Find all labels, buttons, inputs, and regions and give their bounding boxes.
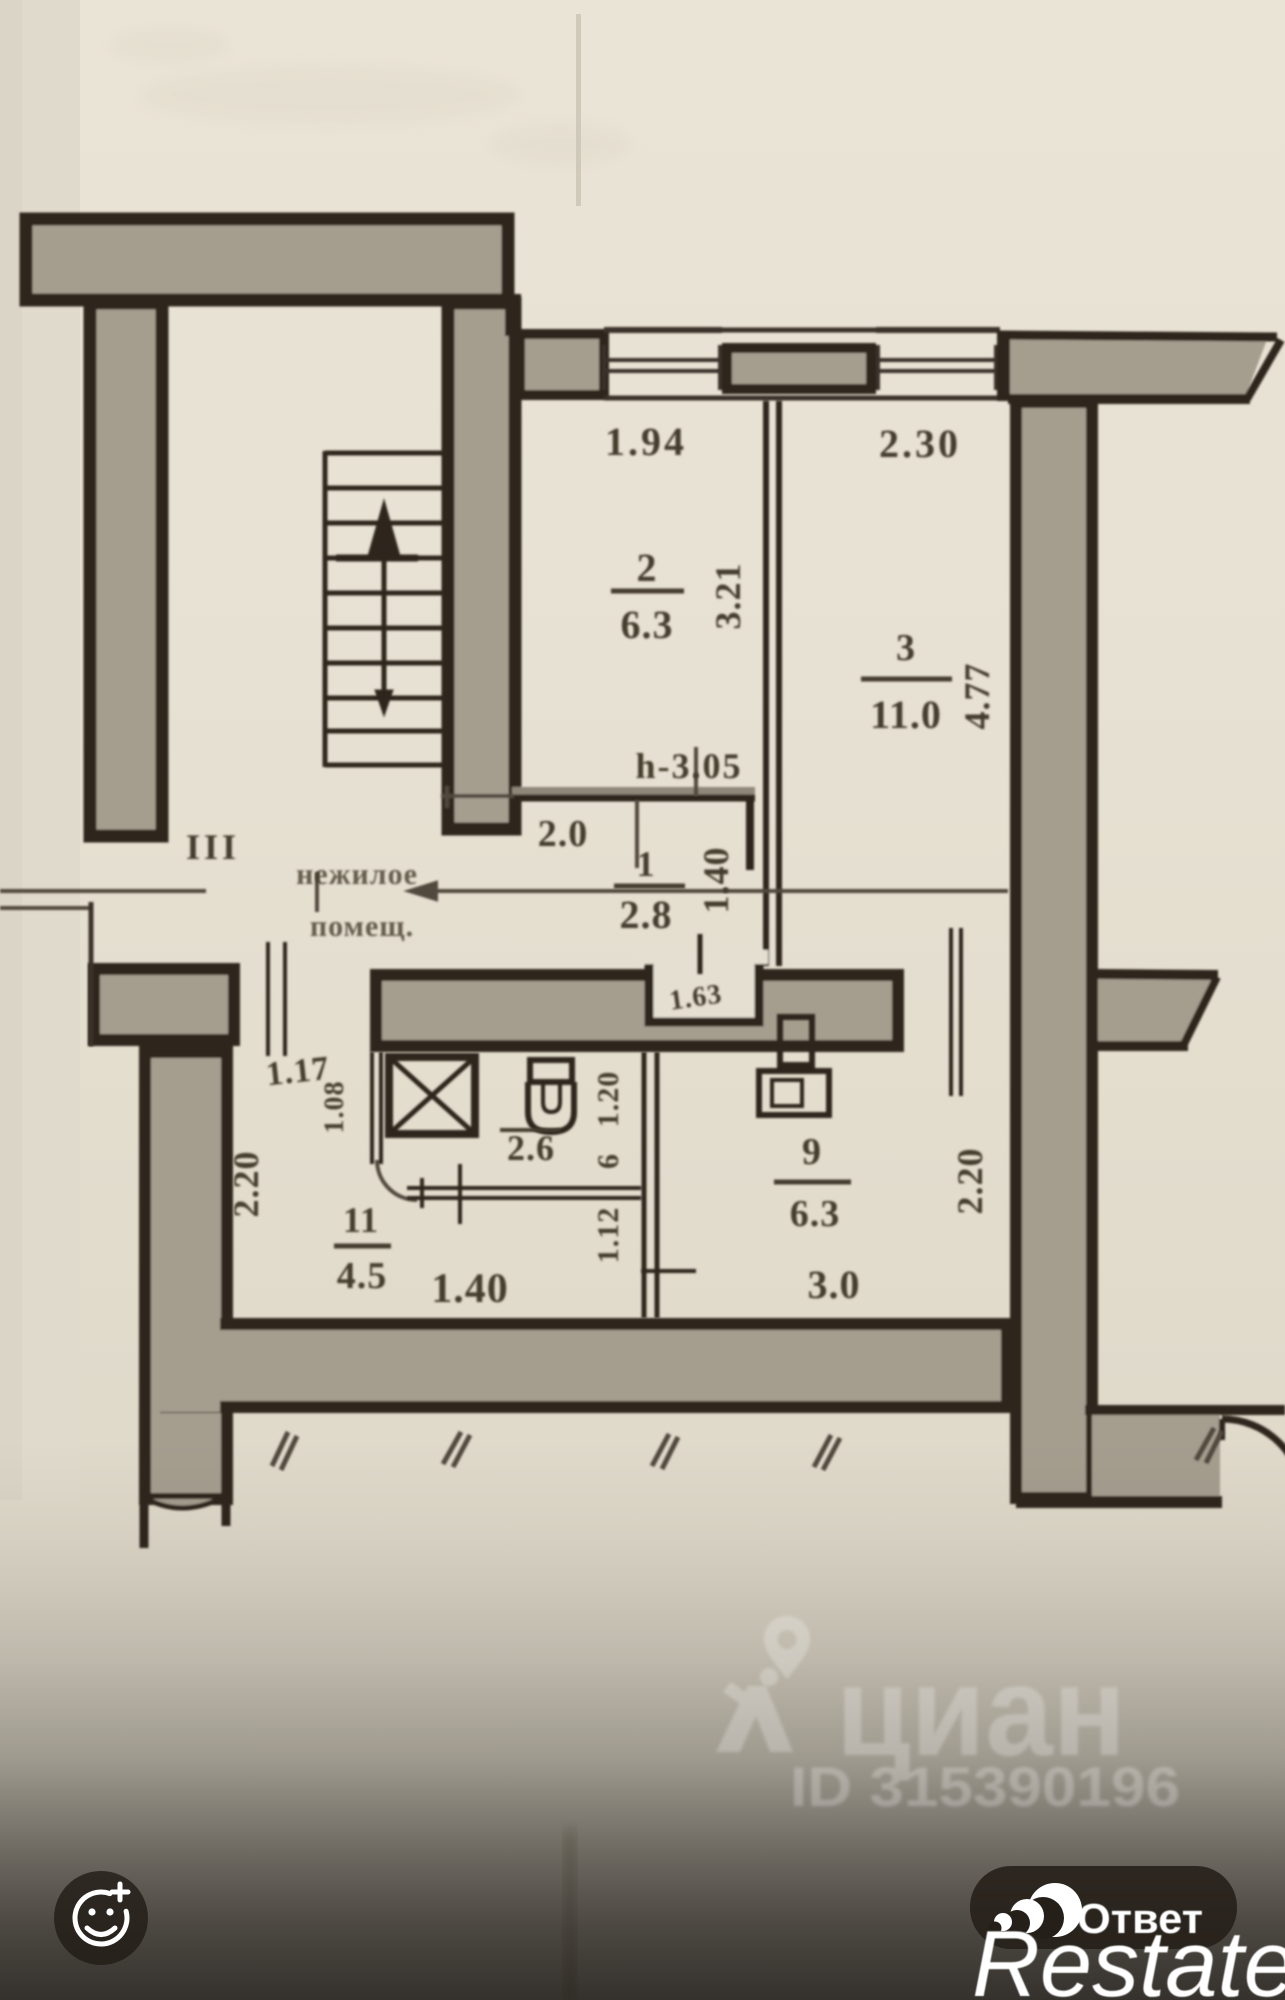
svg-text:2.20: 2.20	[950, 1148, 990, 1215]
svg-text:помещ.: помещ.	[310, 910, 414, 943]
svg-text:4.5: 4.5	[337, 1255, 388, 1297]
svg-text:11: 11	[343, 1200, 379, 1240]
svg-text:6.3: 6.3	[621, 602, 674, 647]
svg-text:9: 9	[802, 1131, 822, 1173]
svg-text:Restate: Restate	[972, 1911, 1285, 2000]
svg-text:h-3.05: h-3.05	[635, 746, 742, 786]
svg-text:1.40: 1.40	[431, 1266, 509, 1312]
svg-text:нежилое: нежилое	[296, 858, 418, 891]
svg-text:4.77: 4.77	[957, 663, 997, 730]
svg-text:3.0: 3.0	[808, 1262, 861, 1307]
svg-text:1: 1	[637, 844, 656, 884]
svg-text:2: 2	[637, 545, 658, 590]
svg-text:3.21: 3.21	[708, 563, 748, 630]
svg-text:1.94: 1.94	[605, 419, 687, 464]
svg-text:1.40: 1.40	[696, 847, 736, 914]
svg-text:2.30: 2.30	[879, 421, 961, 466]
svg-text:1.20: 1.20	[592, 1071, 625, 1128]
svg-text:11.0: 11.0	[870, 692, 942, 737]
svg-text:6: 6	[592, 1153, 625, 1169]
svg-text:1.12: 1.12	[592, 1207, 625, 1264]
svg-text:2.0: 2.0	[538, 813, 589, 855]
svg-text:1.08: 1.08	[319, 1081, 350, 1134]
svg-text:6.3: 6.3	[790, 1193, 841, 1235]
svg-text:III: III	[186, 827, 240, 867]
svg-text:2.20: 2.20	[226, 1151, 266, 1218]
svg-text:3: 3	[896, 627, 916, 669]
svg-text:2.8: 2.8	[620, 892, 673, 937]
svg-text:2.6: 2.6	[507, 1128, 555, 1168]
svg-text:ID 315390196: ID 315390196	[790, 1755, 1180, 1818]
